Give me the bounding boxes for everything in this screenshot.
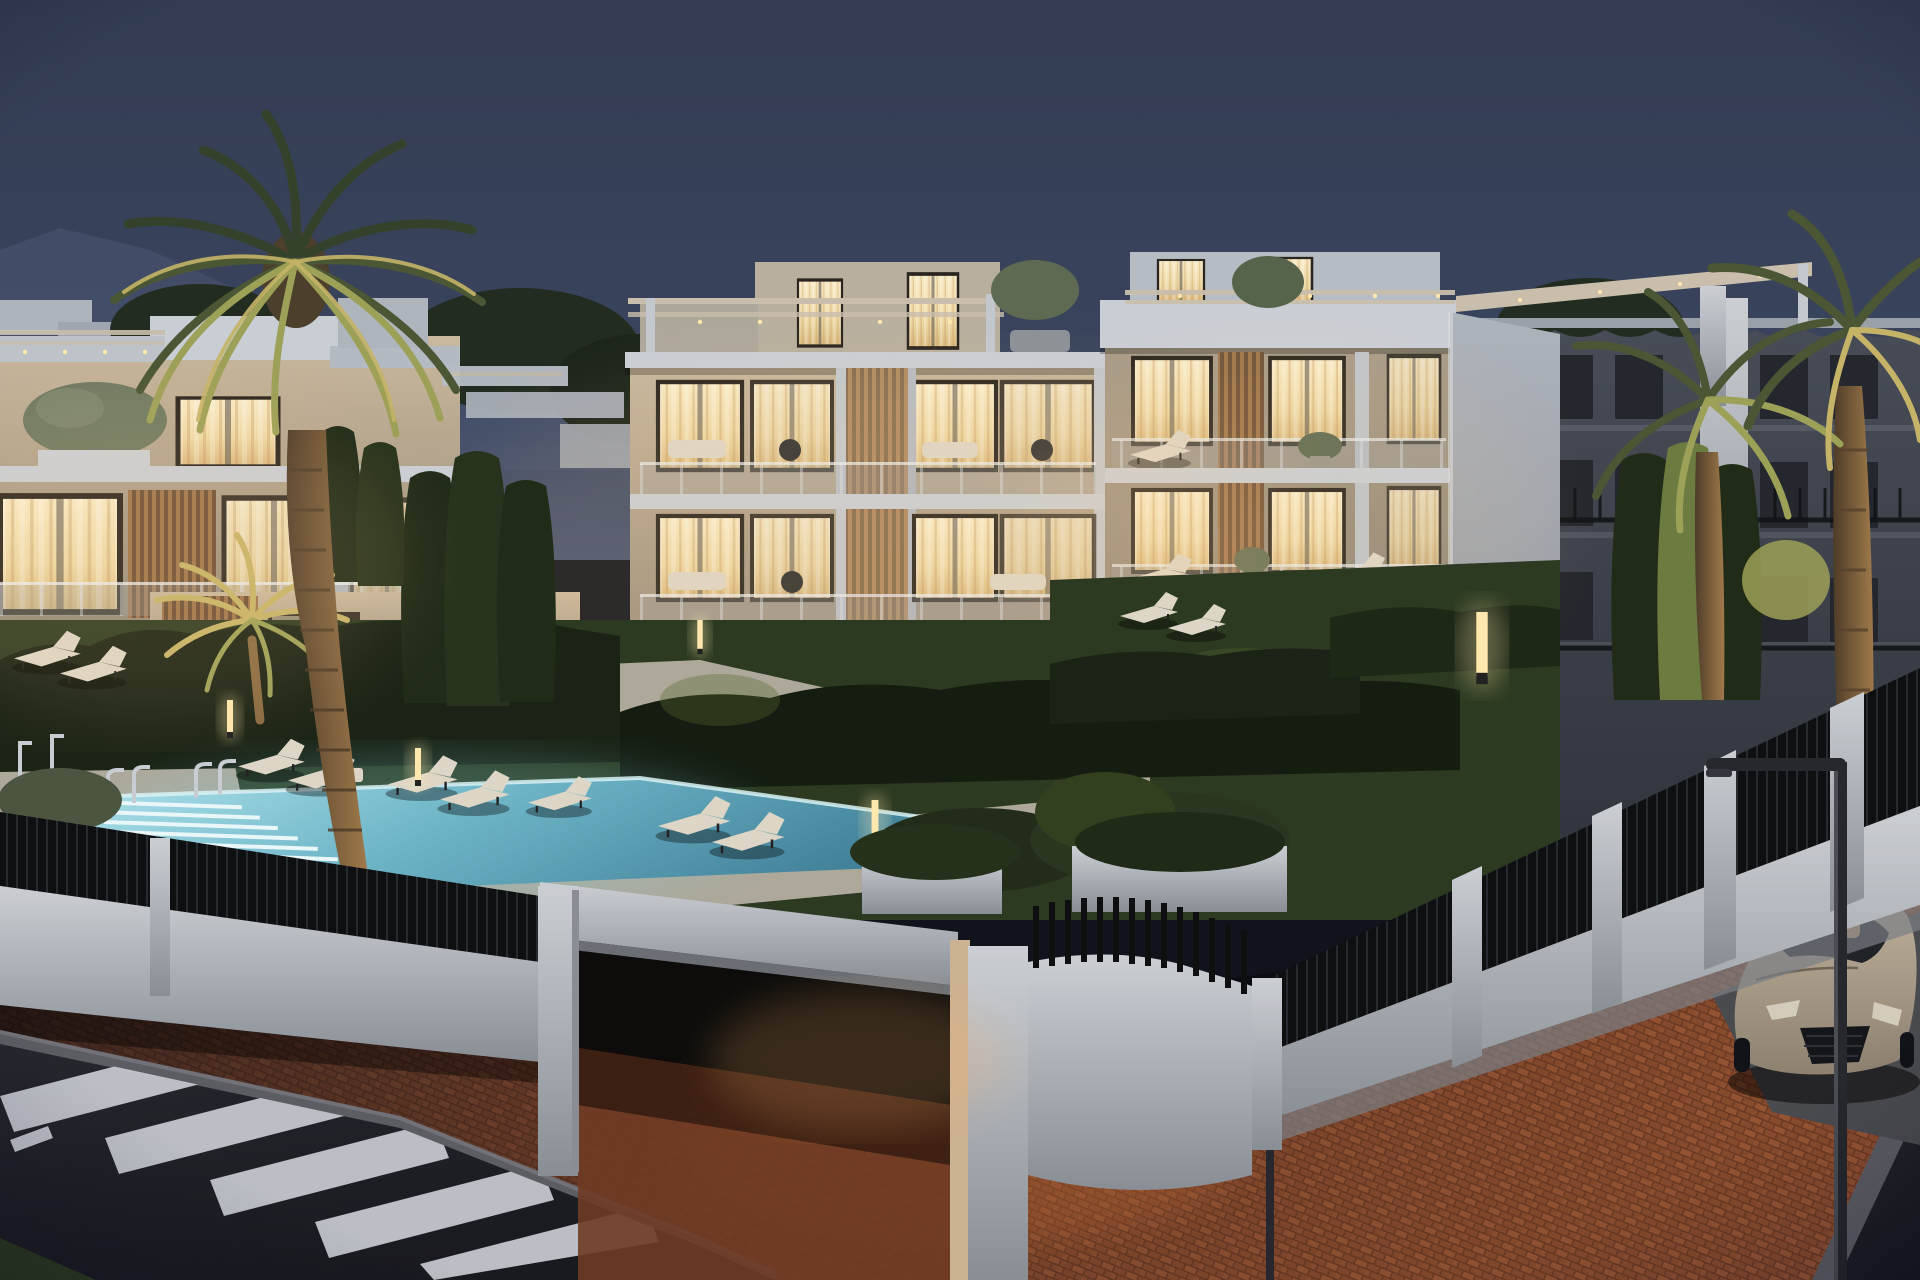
dusk-residence-scene [0, 0, 1920, 1280]
ambience [0, 0, 1920, 1280]
render-canvas [0, 0, 1920, 1280]
vignette [0, 0, 1920, 1280]
